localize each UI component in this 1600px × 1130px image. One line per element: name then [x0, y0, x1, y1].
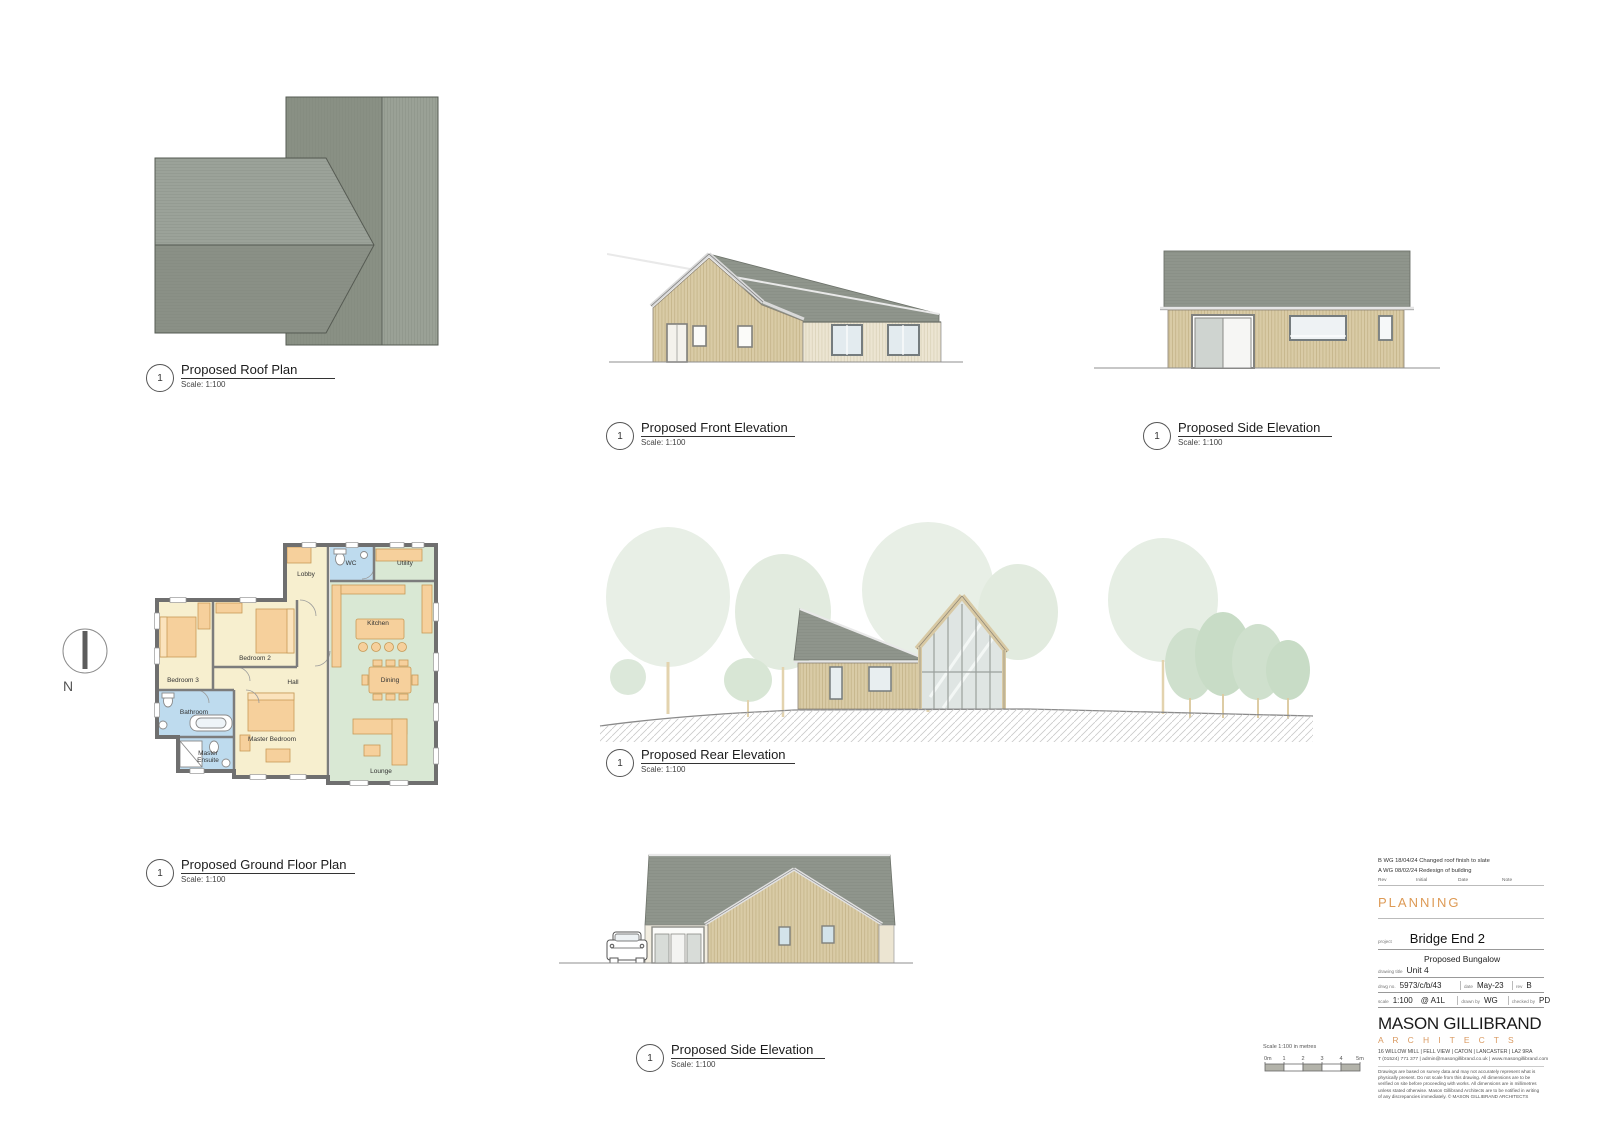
drawing-number-badge: 1	[1143, 422, 1171, 450]
drawing-scale: Scale: 1:100	[181, 875, 355, 884]
label-side-elevation-bottom: 1 Proposed Side Elevation Scale: 1:100	[636, 1042, 825, 1072]
rev-value: B	[1526, 981, 1531, 990]
date-label: date	[1464, 984, 1473, 989]
scale-bar-caption: Scale 1:100 in metres	[1263, 1044, 1316, 1050]
drawing-scale: Scale: 1:100	[181, 380, 335, 389]
front-elevation-drawing	[607, 234, 967, 366]
svg-text:Lounge: Lounge	[370, 768, 392, 775]
svg-text:Bathroom: Bathroom	[180, 709, 208, 716]
drawing-title-row: drawing title Unit 4	[1378, 965, 1544, 978]
firm-name: MASON GILLIBRAND	[1378, 1014, 1544, 1034]
drwg-no-value: 5973/c/b/43	[1400, 981, 1442, 990]
project-subtitle: Proposed Bungalow	[1424, 954, 1544, 964]
drawing-sheet: Lobby WC Utility Kitchen Dining Lounge B…	[0, 0, 1600, 1130]
label-roof-plan: 1 Proposed Roof Plan Scale: 1:100	[146, 362, 335, 392]
svg-text:5m: 5m	[1356, 1056, 1364, 1062]
drawing-number-badge: 1	[606, 749, 634, 777]
revision-note-a: A WG 08/02/24 Redesign of building	[1378, 868, 1544, 874]
status-planning: PLANNING	[1378, 895, 1544, 910]
rear-elevation-drawing	[598, 512, 1318, 744]
svg-text:Hall: Hall	[287, 679, 299, 686]
rev-header-rev: Rev	[1378, 878, 1416, 883]
checked-by-label: checked by	[1512, 999, 1535, 1004]
scale-value: 1:100	[1393, 996, 1413, 1005]
drawing-number: 1	[157, 868, 163, 879]
drawing-title-value: Unit 4	[1407, 965, 1429, 975]
drawing-title: Proposed Side Elevation	[671, 1042, 825, 1059]
svg-text:Master: Master	[198, 750, 219, 757]
project-row: project Bridge End 2	[1378, 931, 1544, 950]
drawing-number-badge: 1	[606, 422, 634, 450]
date-value: May-23	[1477, 981, 1504, 990]
scale-bar: 0m 1 2 3 4 5m	[1260, 1052, 1370, 1078]
drawing-number: 1	[617, 431, 623, 442]
drawing-title: Proposed Ground Floor Plan	[181, 857, 355, 874]
drawing-number: 1	[617, 758, 623, 769]
drawing-title: Proposed Front Elevation	[641, 420, 795, 437]
label-rear-elevation: 1 Proposed Rear Elevation Scale: 1:100	[606, 747, 795, 777]
paper-size: @ A1L	[1421, 996, 1445, 1005]
svg-text:1: 1	[1282, 1056, 1285, 1062]
drawing-title: Proposed Rear Elevation	[641, 747, 795, 764]
checked-by-value: PD	[1539, 996, 1550, 1005]
drawing-number-badge: 1	[146, 364, 174, 392]
revision-note-b: B WG 18/04/24 Changed roof finish to sla…	[1378, 858, 1544, 864]
drawn-by-label: drawn by	[1461, 999, 1480, 1004]
scale-drawn-checked-row: scale 1:100 @ A1L drawn by WG checked by…	[1378, 993, 1544, 1008]
drawing-title-label: drawing title	[1378, 969, 1403, 974]
svg-text:Dining: Dining	[381, 677, 400, 684]
svg-text:0m: 0m	[1264, 1056, 1272, 1062]
north-label: N	[63, 678, 73, 694]
svg-text:Bedroom 2: Bedroom 2	[239, 655, 271, 662]
drawing-scale: Scale: 1:100	[671, 1060, 825, 1069]
number-date-rev-row: drwg no. 5973/c/b/43 date May-23 rev B	[1378, 978, 1544, 993]
svg-text:Bedroom 3: Bedroom 3	[167, 677, 199, 684]
drawing-number-badge: 1	[636, 1044, 664, 1072]
car	[607, 932, 647, 963]
svg-text:Ensuite: Ensuite	[197, 757, 219, 764]
firm-contact: T (01524) 771 377 | admin@masongillibran…	[1378, 1057, 1544, 1062]
drawing-scale: Scale: 1:100	[641, 765, 795, 774]
drawing-number-badge: 1	[146, 859, 174, 887]
revision-header-row: Rev Initial Date Note	[1378, 878, 1544, 886]
rev-header-date: Date	[1458, 878, 1502, 883]
svg-text:Kitchen: Kitchen	[367, 620, 389, 627]
svg-text:WC: WC	[346, 560, 357, 567]
drawing-number: 1	[1154, 431, 1160, 442]
label-side-elevation-top: 1 Proposed Side Elevation Scale: 1:100	[1143, 420, 1332, 450]
roof-plan-drawing	[150, 95, 442, 349]
side-elevation-bottom-drawing	[557, 828, 915, 968]
svg-text:Master Bedroom: Master Bedroom	[248, 736, 296, 743]
disclaimer: Drawings are based on survey data and ma…	[1378, 1066, 1544, 1100]
label-ground-floor-plan: 1 Proposed Ground Floor Plan Scale: 1:10…	[146, 857, 355, 887]
drwg-no-label: drwg no.	[1378, 984, 1396, 989]
drawing-scale: Scale: 1:100	[641, 438, 795, 447]
project-label: project	[1378, 939, 1392, 944]
svg-text:Utility: Utility	[397, 560, 414, 567]
svg-text:4: 4	[1339, 1056, 1342, 1062]
drawing-number: 1	[647, 1053, 653, 1064]
svg-text:3: 3	[1320, 1056, 1323, 1062]
drawing-title: Proposed Side Elevation	[1178, 420, 1332, 437]
drawn-by-value: WG	[1484, 996, 1498, 1005]
rev-label: rev	[1516, 984, 1522, 989]
rev-header-note: Note	[1502, 878, 1512, 883]
firm-address: 16 WILLOW MILL | FELL VIEW | CATON | LAN…	[1378, 1049, 1544, 1055]
drawing-title: Proposed Roof Plan	[181, 362, 335, 379]
scale-label: scale	[1378, 999, 1389, 1004]
title-block: B WG 18/04/24 Changed roof finish to sla…	[1378, 858, 1544, 1100]
rev-header-initial: Initial	[1416, 878, 1458, 883]
north-arrow-icon	[55, 615, 115, 679]
firm-subtitle: A R C H I T E C T S	[1378, 1035, 1544, 1045]
svg-text:2: 2	[1301, 1056, 1304, 1062]
drawing-scale: Scale: 1:100	[1178, 438, 1332, 447]
ground-floor-plan-drawing: Lobby WC Utility Kitchen Dining Lounge B…	[150, 533, 442, 795]
drawing-number: 1	[157, 373, 163, 384]
project-name: Bridge End 2	[1410, 931, 1485, 946]
svg-text:Lobby: Lobby	[297, 571, 315, 578]
side-elevation-top-drawing	[1092, 243, 1444, 373]
label-front-elevation: 1 Proposed Front Elevation Scale: 1:100	[606, 420, 795, 450]
